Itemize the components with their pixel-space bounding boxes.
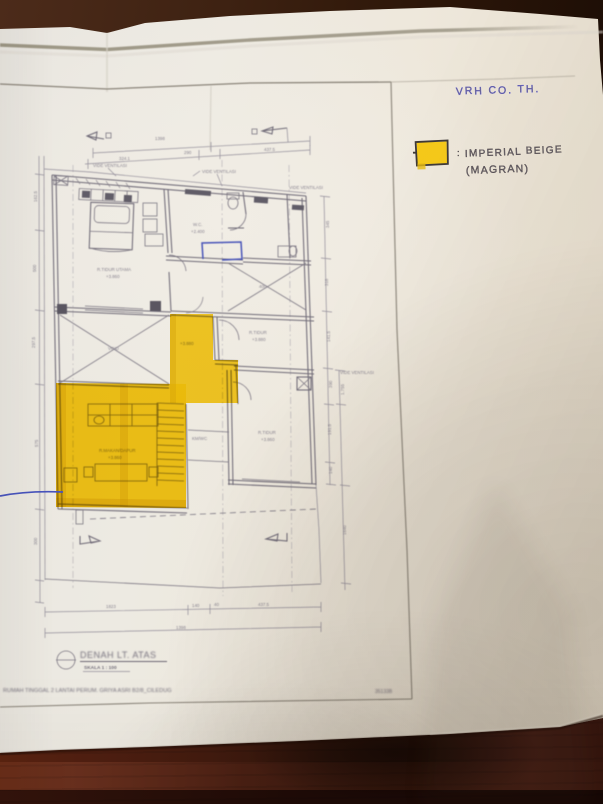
- svg-text:VRH CO. TH.: VRH CO. TH.: [456, 82, 541, 98]
- svg-text:345: 345: [325, 220, 330, 228]
- svg-text:KM/WC: KM/WC: [192, 436, 207, 441]
- svg-text:290: 290: [184, 150, 192, 155]
- svg-text:1.755: 1.755: [340, 383, 345, 395]
- svg-text:141.5: 141.5: [326, 330, 331, 342]
- svg-text:+3.860: +3.860: [106, 274, 120, 279]
- svg-text:400: 400: [259, 284, 267, 289]
- svg-text:+3.860: +3.860: [261, 437, 275, 442]
- svg-text:437.5: 437.5: [264, 147, 276, 152]
- svg-text:437.5: 437.5: [258, 602, 270, 607]
- svg-text:162.5: 162.5: [33, 190, 38, 202]
- svg-text:318: 318: [324, 278, 329, 286]
- svg-text:140: 140: [192, 603, 200, 608]
- svg-text:VIDE VENTILASI: VIDE VENTILASI: [93, 163, 127, 168]
- svg-text:R.TIDUR UTAMA: R.TIDUR UTAMA: [97, 267, 131, 272]
- svg-text:W.C.: W.C.: [193, 222, 203, 227]
- svg-text:140: 140: [328, 466, 333, 474]
- svg-text:DENAH LT. ATAS: DENAH LT. ATAS: [80, 650, 157, 660]
- svg-text:324.1: 324.1: [119, 156, 131, 161]
- svg-text:191.5: 191.5: [327, 423, 332, 435]
- svg-text:1640: 1640: [342, 525, 347, 535]
- svg-text:VOID: VOID: [108, 346, 119, 351]
- svg-text:1823: 1823: [106, 604, 116, 609]
- svg-text:390: 390: [328, 380, 333, 388]
- svg-text:RUMAH TINGGAL 2 LANTAI PERUM.: RUMAH TINGGAL 2 LANTAI PERUM. GRIYA ASRI…: [3, 688, 172, 694]
- svg-text:SKALA 1 : 100: SKALA 1 : 100: [84, 665, 117, 671]
- svg-text:VIDE VENTILASI: VIDE VENTILASI: [202, 169, 236, 174]
- svg-text:VIDE VENTILASI: VIDE VENTILASI: [289, 185, 323, 190]
- svg-text:1398: 1398: [176, 625, 186, 630]
- svg-text:IMPERIAL BEIGE: IMPERIAL BEIGE: [465, 144, 563, 160]
- svg-text:+2.400: +2.400: [191, 229, 205, 234]
- svg-text:R.TIDUR: R.TIDUR: [249, 330, 267, 335]
- svg-text:297.5: 297.5: [31, 336, 36, 348]
- svg-text:575: 575: [34, 439, 39, 447]
- svg-text:VIDE VENTILASI: VIDE VENTILASI: [340, 370, 374, 375]
- svg-text:300: 300: [33, 537, 38, 545]
- svg-text:35133B: 35133B: [375, 689, 393, 695]
- svg-text:(MAGRAN): (MAGRAN): [466, 162, 530, 177]
- svg-text:40: 40: [214, 602, 219, 607]
- svg-text:1398: 1398: [155, 136, 165, 141]
- svg-text:R.TIDUR: R.TIDUR: [258, 430, 276, 435]
- svg-text:500: 500: [32, 264, 37, 272]
- svg-text::: :: [457, 148, 460, 159]
- svg-text:+3.880: +3.880: [252, 337, 266, 342]
